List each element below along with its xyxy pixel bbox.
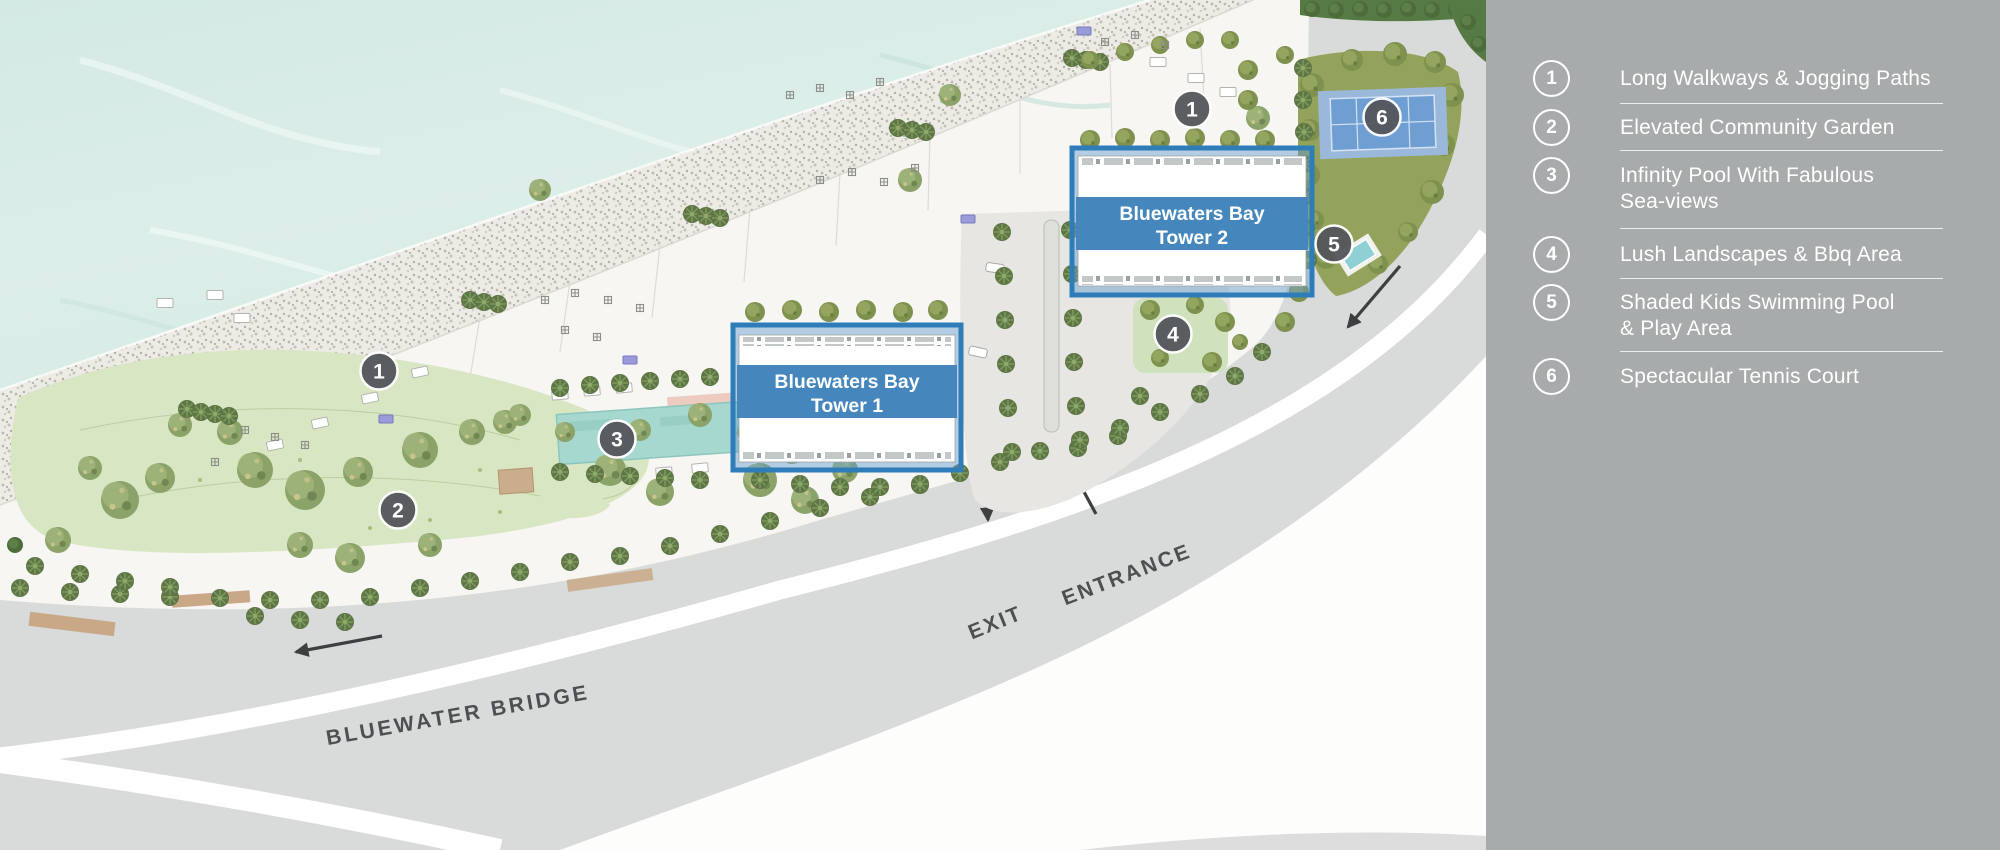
map-marker-4: 4	[1155, 316, 1192, 353]
map-marker-1-east: 1	[1174, 91, 1211, 128]
legend-label-6: Spectacular Tennis Court	[1620, 364, 1950, 390]
legend-number-2: 2	[1533, 109, 1570, 146]
legend-divider	[1620, 278, 1943, 279]
svg-text:1: 1	[1186, 99, 1198, 122]
legend-divider	[1620, 351, 1943, 352]
legend-label-3: Infinity Pool With FabulousSea-views	[1620, 163, 1950, 215]
legend-number-4-text: 4	[1546, 244, 1557, 266]
legend-number-5: 5	[1533, 284, 1570, 321]
svg-text:6: 6	[1376, 107, 1388, 130]
legend-number-2-text: 2	[1546, 117, 1557, 139]
legend-sidebar: 1 Long Walkways & Jogging Paths 2 Elevat…	[1486, 0, 2000, 850]
map-marker-1-west: 1	[361, 353, 398, 390]
legend-number-3-text: 3	[1546, 165, 1557, 187]
tower-1-overlay[interactable]: Bluewaters Bay Tower 1	[733, 325, 961, 470]
map-marker-2: 2	[380, 492, 417, 529]
map-marker-5: 5	[1316, 226, 1353, 263]
masterplan-screen: BLUEWATER BRIDGE EXIT ENTRANCE	[0, 0, 2000, 850]
legend-number-6-text: 6	[1546, 366, 1557, 388]
legend-number-3: 3	[1533, 157, 1570, 194]
legend-number-6: 6	[1533, 358, 1570, 395]
site-map: BLUEWATER BRIDGE EXIT ENTRANCE	[0, 0, 1486, 850]
tower-2-name: Bluewaters Bay	[1119, 203, 1264, 225]
map-marker-3: 3	[599, 421, 636, 458]
tower-1-name: Bluewaters Bay	[774, 371, 919, 393]
legend-number-1-text: 1	[1546, 68, 1557, 90]
map-marker-6: 6	[1364, 99, 1401, 136]
legend-label-1: Long Walkways & Jogging Paths	[1620, 66, 1950, 92]
svg-text:5: 5	[1328, 234, 1340, 257]
legend-divider	[1620, 150, 1943, 151]
svg-text:1: 1	[373, 361, 385, 384]
tower-2-number: Tower 2	[1156, 227, 1228, 249]
legend-divider	[1620, 228, 1943, 229]
legend-label-4: Lush Landscapes & Bbq Area	[1620, 242, 1950, 268]
legend-number-4: 4	[1533, 236, 1570, 273]
tower-2-overlay[interactable]: Bluewaters Bay Tower 2	[1072, 148, 1312, 295]
legend-number-1: 1	[1533, 60, 1570, 97]
legend-label-2: Elevated Community Garden	[1620, 115, 1950, 141]
tower-1-number: Tower 1	[811, 395, 883, 417]
svg-text:3: 3	[611, 429, 623, 452]
legend-divider	[1620, 103, 1943, 104]
svg-text:4: 4	[1167, 324, 1179, 347]
svg-text:2: 2	[392, 500, 404, 523]
legend-label-5: Shaded Kids Swimming Pool& Play Area	[1620, 290, 1950, 342]
legend-number-5-text: 5	[1546, 292, 1557, 314]
